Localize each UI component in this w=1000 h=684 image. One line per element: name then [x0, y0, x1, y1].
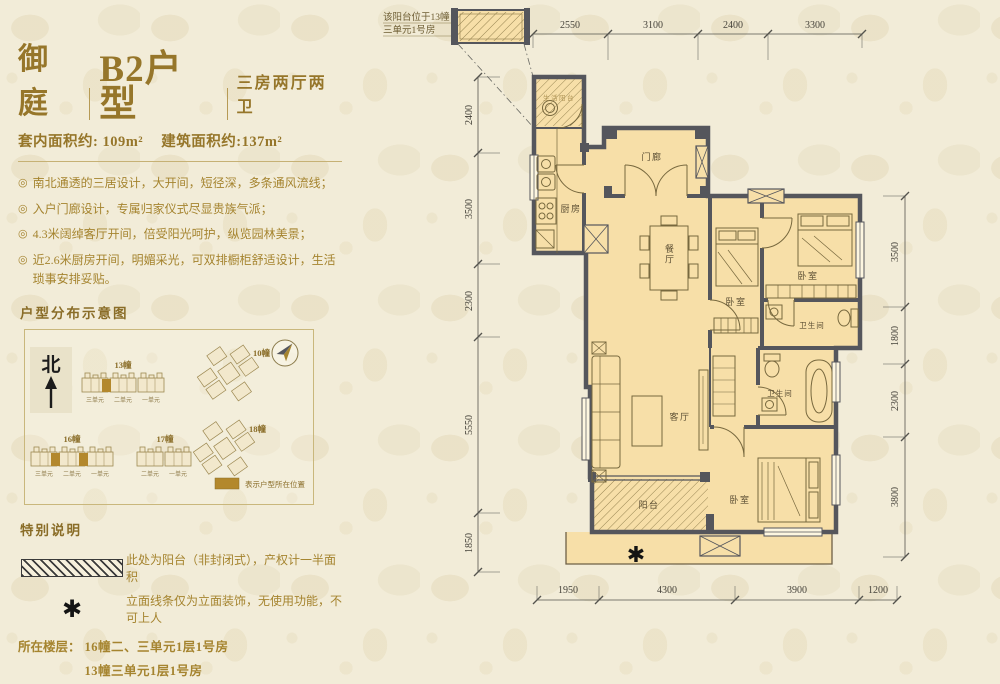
dim-left: 3500 — [464, 199, 475, 219]
unit-highlight — [51, 453, 60, 466]
building-13: 13幢 三单元 二单元 一单元 — [82, 360, 164, 404]
dim-left: 2400 — [464, 105, 475, 125]
star-icon: ✱ — [18, 597, 126, 621]
building-name: 16幢 — [63, 434, 81, 444]
notes-title: 特别说明 — [20, 519, 342, 539]
room-label-master: 卧室 — [729, 494, 750, 505]
divider-line — [18, 161, 342, 162]
area-inner: 套内面积约: 109m² — [18, 134, 143, 150]
feature-text: 入户门廊设计，专属归家仪式尽显贵族气派； — [33, 200, 273, 219]
unit-label: 一单元 — [142, 396, 160, 404]
building-18: 18幢 — [186, 410, 266, 487]
room-label-bath1: 卫生间 — [799, 320, 825, 330]
special-notes: 此处为阳台（非封闭式），产权计一半面积 ✱ 立面线条仅为立面装饰，无使用功能，不… — [18, 551, 342, 684]
dim-left: 1850 — [464, 533, 475, 553]
room-label-balcony: 阳台 — [638, 499, 659, 510]
note-row: 此处为阳台（非封闭式），产权计一半面积 — [18, 551, 342, 585]
note-text: 此处为阳台（非封闭式），产权计一半面积 — [126, 551, 342, 585]
feature-list: ◎ 南北通透的三居设计，大开间，短径深，多条通风流线； ◎ 入户门廊设计，专属归… — [18, 174, 342, 288]
room-label-bedroom-center: 卧室 — [725, 296, 746, 307]
unit-highlight — [102, 379, 111, 392]
area-line: 套内面积约: 109m² 建筑面积约:137m² — [18, 130, 342, 151]
bullet-icon: ◎ — [18, 225, 28, 244]
room-label-living: 客厅 — [669, 411, 690, 422]
detached-balcony: 该阳台位于13幢 三单元1号房 — [383, 8, 534, 128]
building-10: 10幢 — [190, 335, 270, 412]
legend-swatch — [215, 478, 239, 489]
room-label-dining: 餐厅 — [664, 243, 674, 265]
bullet-icon: ◎ — [18, 200, 28, 219]
note-row: ✱ 立面线条仅为立面装饰，无使用功能，不可上人 — [18, 592, 342, 626]
dim-bottom: 1200 — [868, 585, 888, 596]
feature-item: ◎ 近2.6米厨房开间，明媚采光，可双排橱柜舒适设计，生活琐事安排妥贴。 — [18, 251, 342, 288]
dim-bottom: 3900 — [787, 585, 807, 596]
unit-label: 二单元 — [63, 470, 81, 478]
room-label-porch: 门廊 — [641, 151, 662, 162]
bullet-icon: ◎ — [18, 174, 28, 193]
floorplan-poster: { "page": { "star_symbol": "✱" }, "heade… — [0, 0, 1000, 636]
terrace: ✱ — [566, 532, 832, 568]
dim-top: 3300 — [805, 20, 825, 31]
building-name: 13幢 — [114, 360, 132, 370]
room-label-service-balcony: 生活阳台 — [543, 93, 575, 102]
unit-label: 一单元 — [91, 470, 109, 478]
dim-right: 3800 — [890, 487, 901, 507]
dim-bottom: 4300 — [657, 585, 677, 596]
ac-platform-icon — [700, 536, 740, 556]
north-indicator: 北 — [30, 347, 72, 413]
unit-name: B2户型 — [99, 52, 217, 122]
building-name: 17幢 — [156, 434, 174, 444]
dim-left: 2300 — [464, 291, 475, 311]
dim-right: 1800 — [890, 326, 901, 346]
floor-title: 所在楼层： — [18, 636, 81, 684]
distribution-map: 北 13幢 三单元 二单元 一单元 — [24, 329, 314, 505]
dim-top: 3100 — [643, 20, 663, 31]
room-label-bath2: 卫生间 — [767, 388, 793, 398]
info-panel: 御庭 B2户型 三房两厅两卫 套内面积约: 109m² 建筑面积约:137m² … — [18, 34, 342, 684]
feature-text: 南北通透的三居设计，大开间，短径深，多条通风流线； — [33, 174, 333, 193]
layout-type: 三房两厅两卫 — [237, 69, 342, 122]
floor-line: 16幢二、三单元1层1号房 — [85, 636, 229, 655]
title-row: 御庭 B2户型 三房两厅两卫 — [18, 34, 342, 122]
unit-label: 一单元 — [169, 470, 187, 478]
unit-label: 二单元 — [141, 470, 159, 478]
legend: 表示户型所在位置 — [215, 478, 305, 489]
floor-line: 13幢三单元1层1号房 — [85, 660, 229, 679]
building-16: 16幢 三单元 二单元 一单元 — [31, 434, 113, 478]
unit-label: 三单元 — [86, 396, 104, 404]
room-label-kitchen: 厨房 — [560, 203, 581, 214]
feature-text: 近2.6米厨房开间，明媚采光，可双排橱柜舒适设计，生活琐事安排妥贴。 — [33, 251, 342, 288]
floor-location: 所在楼层： 16幢二、三单元1层1号房 13幢三单元1层1号房 — [18, 636, 342, 684]
dim-bottom: 1950 — [558, 585, 578, 596]
floorplan-drawing: 该阳台位于13幢 三单元1号房 — [370, 0, 1000, 636]
star-mark: ✱ — [627, 543, 645, 568]
title-divider — [227, 88, 228, 120]
balcony-annotation-line1: 该阳台位于13幢 — [383, 11, 450, 23]
unit-highlight — [79, 453, 88, 466]
legend-text: 表示户型所在位置 — [245, 479, 305, 489]
balcony-annotation-line2: 三单元1号房 — [383, 24, 435, 36]
dim-right: 3500 — [890, 242, 901, 262]
feature-text: 4.3米阔绰客厅开间，倍受阳光呵护，纵览园林美景； — [33, 225, 312, 244]
compass-icon — [272, 340, 298, 366]
north-label: 北 — [41, 354, 60, 376]
dim-right: 2300 — [890, 391, 901, 411]
hatch-legend-icon — [18, 559, 126, 577]
project-name: 御庭 — [18, 34, 80, 122]
title-divider — [89, 88, 90, 120]
area-build: 建筑面积约:137m² — [161, 134, 282, 150]
feature-item: ◎ 4.3米阔绰客厅开间，倍受阳光呵护，纵览园林美景； — [18, 225, 342, 244]
building-17: 17幢 二单元 一单元 — [137, 434, 191, 478]
note-text: 立面线条仅为立面装饰，无使用功能，不可上人 — [126, 592, 342, 626]
service-balcony-hatch — [536, 79, 582, 126]
dim-top: 2400 — [723, 20, 743, 31]
building-name: 10幢 — [253, 348, 271, 358]
feature-item: ◎ 入户门廊设计，专属归家仪式尽显贵族气派； — [18, 200, 342, 219]
dim-left: 5550 — [464, 415, 475, 435]
feature-item: ◎ 南北通透的三居设计，大开间，短径深，多条通风流线； — [18, 174, 342, 193]
unit-label: 二单元 — [114, 396, 132, 404]
building-name: 18幢 — [249, 424, 267, 434]
distribution-svg: 北 13幢 三单元 二单元 一单元 — [25, 330, 313, 504]
dim-top: 2550 — [560, 20, 580, 31]
unit-label: 三单元 — [35, 470, 53, 478]
room-label-bedroom-right: 卧室 — [797, 270, 818, 281]
bullet-icon: ◎ — [18, 251, 28, 288]
distribution-title: 户型分布示意图 — [20, 302, 342, 322]
